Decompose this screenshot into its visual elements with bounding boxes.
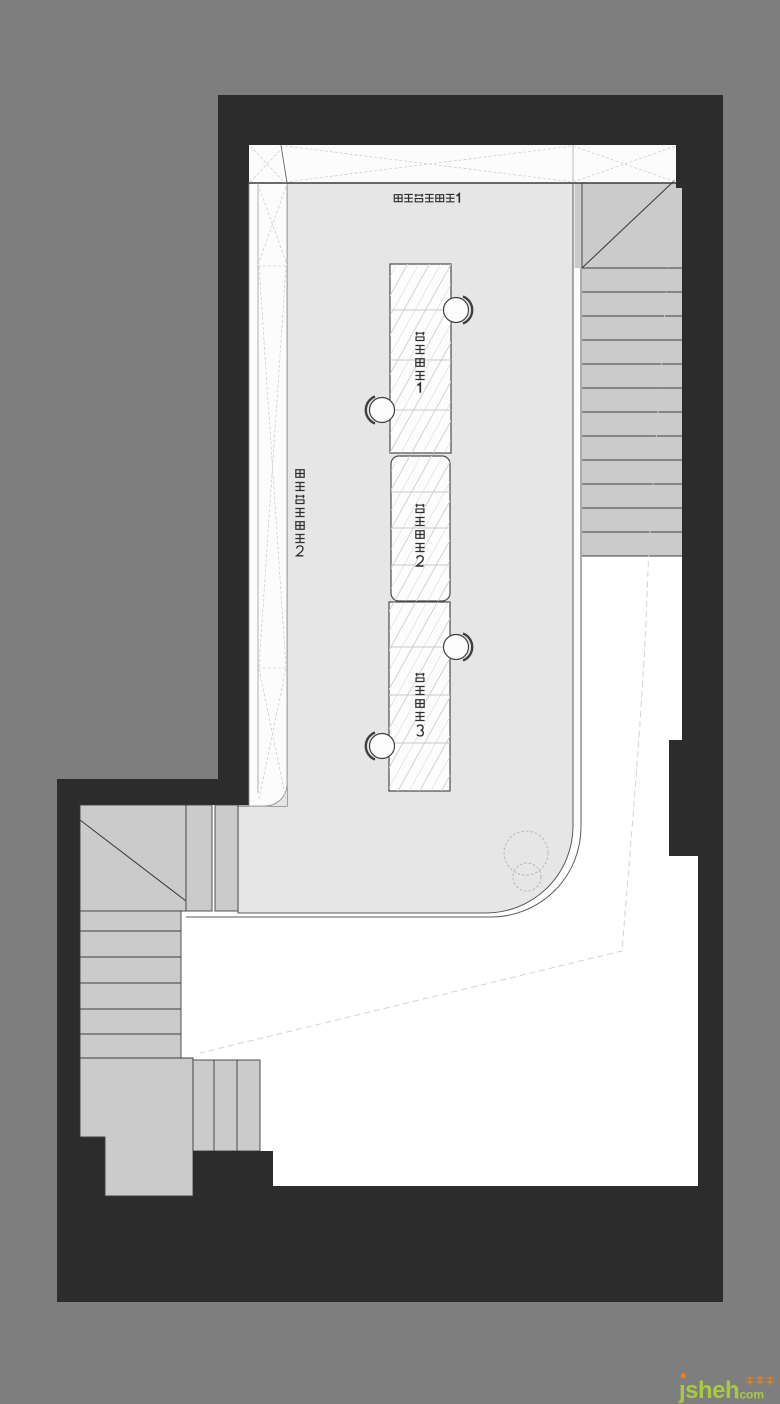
svg-text:.com: .com bbox=[736, 1388, 764, 1402]
